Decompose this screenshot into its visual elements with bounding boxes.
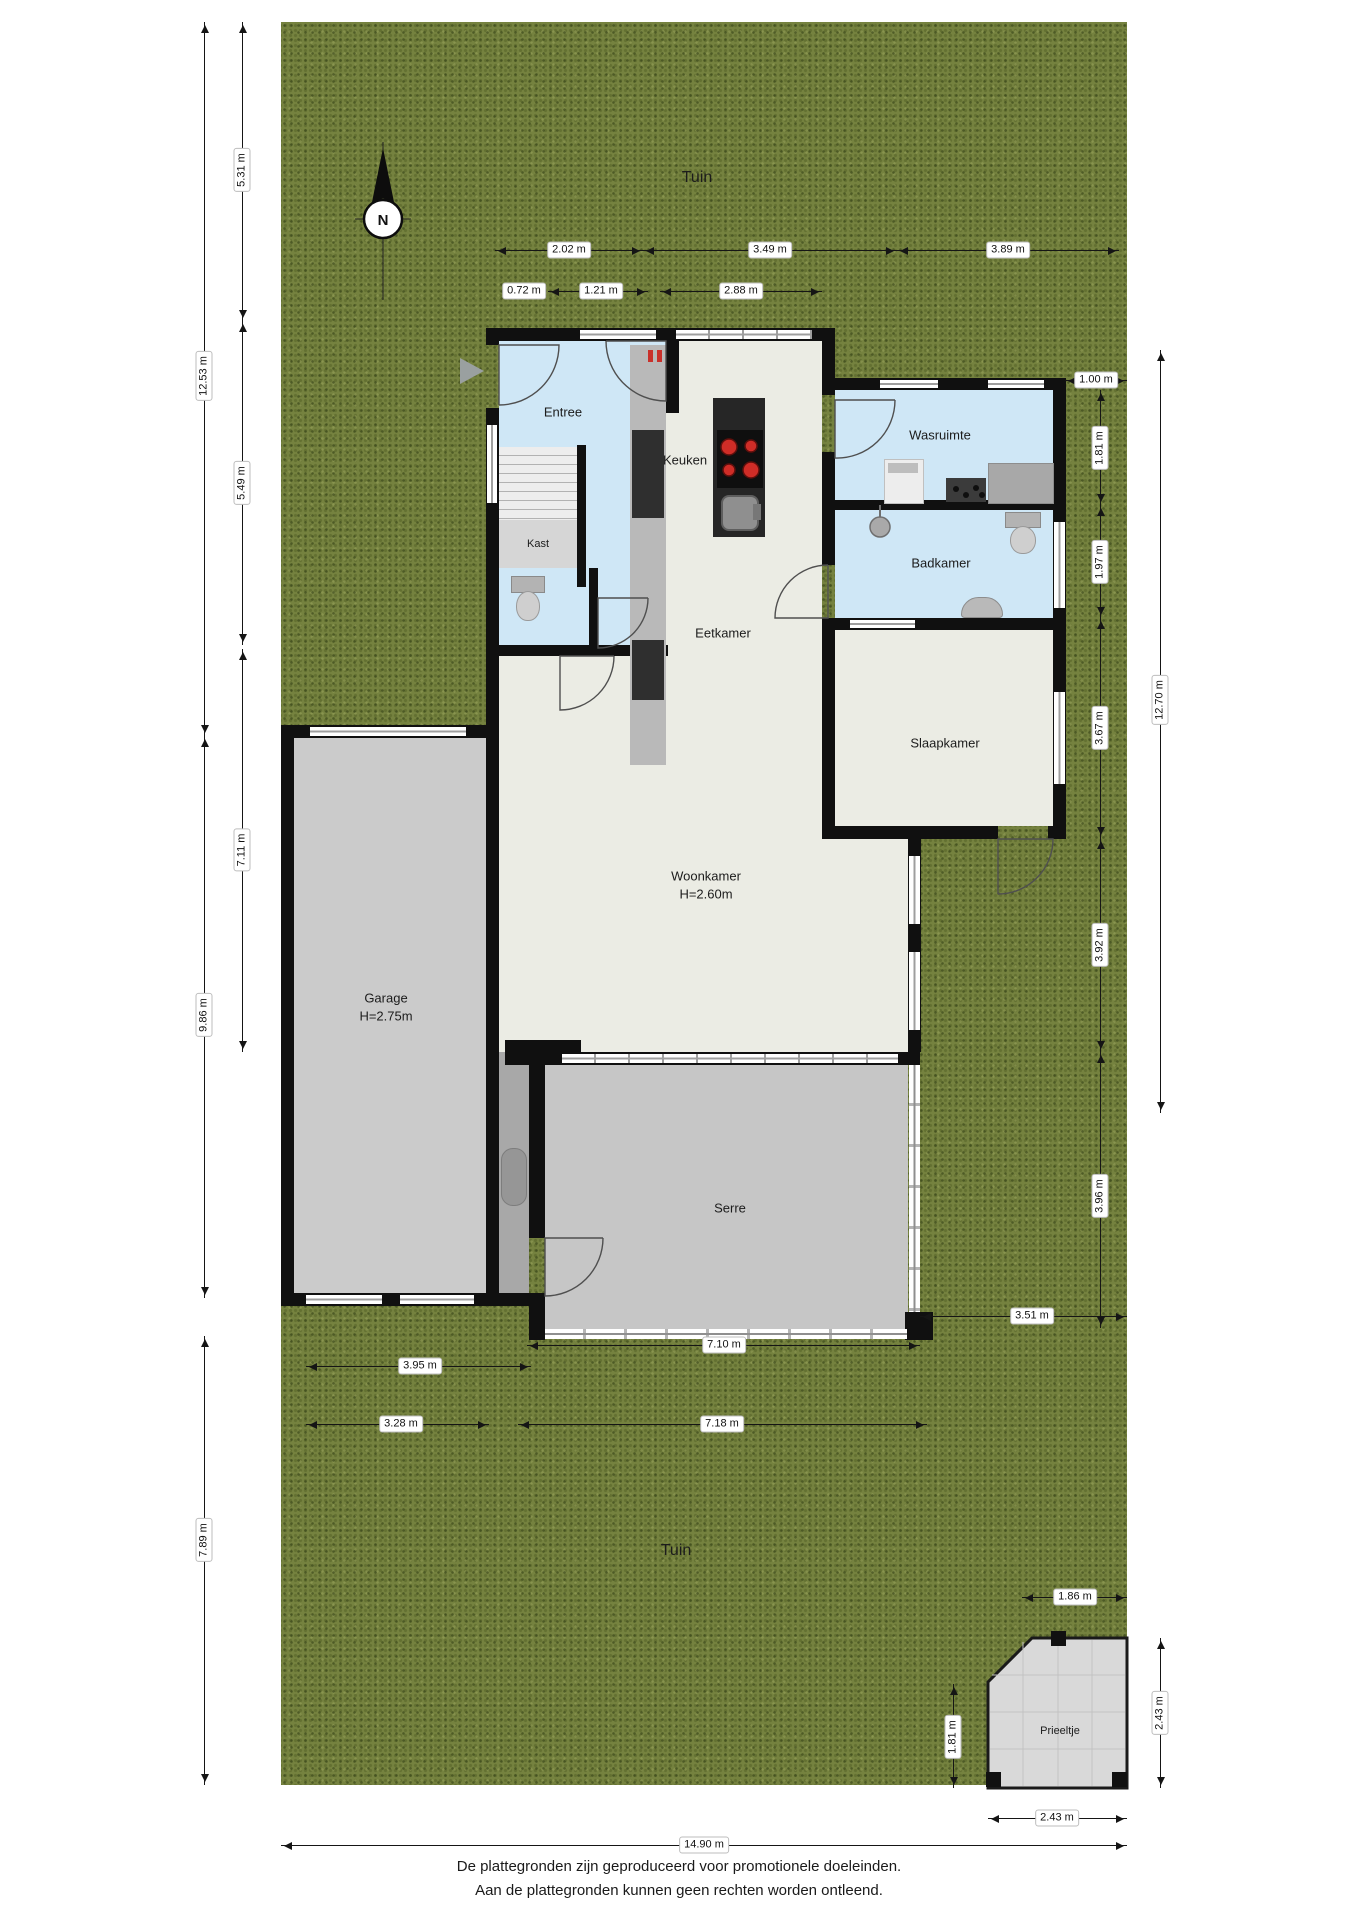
- dim-label: 1.81 m: [1092, 426, 1109, 470]
- garage-passage-door: [501, 1148, 527, 1206]
- dryer-unit: [946, 478, 986, 502]
- washing-machine-panel: [888, 463, 918, 473]
- floorplan-page: Tuin Tuin: [0, 0, 1358, 1920]
- room-label-prieeltje: Prieeltje: [1040, 1725, 1080, 1737]
- window: [310, 727, 466, 736]
- room-label-woonkamer: Woonkamer: [671, 869, 741, 884]
- footer-disclaimer-line1: De plattegronden zijn geproduceerd voor …: [0, 1858, 1358, 1875]
- wall: [822, 452, 835, 565]
- dim-label: 3.95 m: [398, 1358, 442, 1375]
- wall: [486, 328, 499, 345]
- dim-label: 1.21 m: [579, 283, 623, 300]
- room-label-garage-height: H=2.75m: [359, 1009, 412, 1024]
- slaapkamer-floor: [835, 630, 1053, 826]
- dim-label: 7.18 m: [700, 1416, 744, 1433]
- dim-label: 12.53 m: [196, 351, 213, 401]
- wall: [822, 826, 998, 839]
- dim-label: 5.31 m: [234, 148, 251, 192]
- dim-label: 2.88 m: [719, 283, 763, 300]
- window: [306, 1295, 382, 1304]
- dim-label: 5.49 m: [234, 461, 251, 505]
- dim-label: 1.81 m: [945, 1715, 962, 1759]
- wall: [666, 328, 679, 413]
- dim-label: 3.51 m: [1010, 1308, 1054, 1325]
- window: [909, 856, 920, 924]
- footer-disclaimer-line2: Aan de plattegronden kunnen geen rechten…: [0, 1882, 1358, 1899]
- dim-label: 2.43 m: [1035, 1810, 1079, 1827]
- wall: [822, 618, 835, 838]
- dim-label: 3.28 m: [379, 1416, 423, 1433]
- wall: [529, 1052, 545, 1238]
- window: [400, 1295, 474, 1304]
- wc-toilet-bowl: [516, 591, 540, 621]
- wall: [822, 328, 835, 395]
- dim-label: 3.89 m: [986, 242, 1030, 259]
- counter-appliance-1: [632, 430, 664, 518]
- window: [909, 952, 920, 1030]
- dim-line: [1160, 350, 1161, 1113]
- room-label-garage: Garage: [364, 991, 407, 1006]
- wall: [1048, 826, 1066, 839]
- wall: [486, 738, 499, 1306]
- dim-label: 3.49 m: [748, 242, 792, 259]
- dim-label: 1.86 m: [1053, 1589, 1097, 1606]
- island-faucet: [753, 504, 761, 520]
- cooktop: [717, 430, 763, 488]
- room-label-eetkamer: Eetkamer: [695, 626, 751, 641]
- serre-floor: [545, 1065, 908, 1329]
- bath-toilet-bowl: [1010, 526, 1036, 554]
- room-label-kast: Kast: [527, 538, 549, 550]
- wall: [589, 568, 598, 645]
- garden-label-bottom: Tuin: [661, 1542, 692, 1560]
- window: [487, 425, 497, 503]
- woonkamer-extension-floor: [822, 839, 908, 1052]
- window: [676, 330, 812, 339]
- counter-appliance-2: [632, 640, 664, 700]
- dim-label: 12.70 m: [1152, 675, 1169, 725]
- window: [850, 620, 915, 628]
- window: [1054, 692, 1065, 784]
- dim-label: 3.67 m: [1092, 706, 1109, 750]
- dim-label: 14.90 m: [679, 1837, 729, 1854]
- room-label-slaapkamer: Slaapkamer: [910, 736, 979, 751]
- laundry-counter: [988, 463, 1054, 504]
- window: [1054, 522, 1065, 608]
- dim-label: 9.86 m: [196, 993, 213, 1037]
- serre-glass-wall-right: [909, 1065, 920, 1312]
- window: [580, 330, 656, 339]
- dim-label: 0.72 m: [502, 283, 546, 300]
- window: [880, 380, 938, 388]
- boiler-red-marks: [648, 350, 662, 362]
- window: [988, 380, 1044, 388]
- room-label-keuken: Keuken: [663, 453, 707, 468]
- room-label-entree: Entree: [544, 405, 582, 420]
- dim-label: 1.97 m: [1092, 540, 1109, 584]
- dim-label: 3.92 m: [1092, 923, 1109, 967]
- room-label-wasruimte: Wasruimte: [909, 428, 971, 443]
- dim-label: 2.02 m: [547, 242, 591, 259]
- dim-label: 1.00 m: [1074, 372, 1118, 389]
- sliding-door: [562, 1054, 898, 1063]
- dim-label: 3.96 m: [1092, 1174, 1109, 1218]
- wall: [577, 445, 586, 587]
- staircase: [499, 447, 577, 520]
- dim-label: 7.89 m: [196, 1518, 213, 1562]
- dim-label: 7.10 m: [702, 1337, 746, 1354]
- kitchen-counter: [630, 345, 666, 765]
- dim-label: 7.11 m: [234, 829, 251, 872]
- bath-sink: [961, 597, 1003, 618]
- room-label-serre: Serre: [714, 1201, 746, 1216]
- dim-label: 2.43 m: [1152, 1691, 1169, 1735]
- room-label-woonkamer-height: H=2.60m: [679, 887, 732, 902]
- room-label-badkamer: Badkamer: [911, 556, 970, 571]
- garden-label-top: Tuin: [682, 169, 713, 187]
- wall: [281, 725, 294, 1306]
